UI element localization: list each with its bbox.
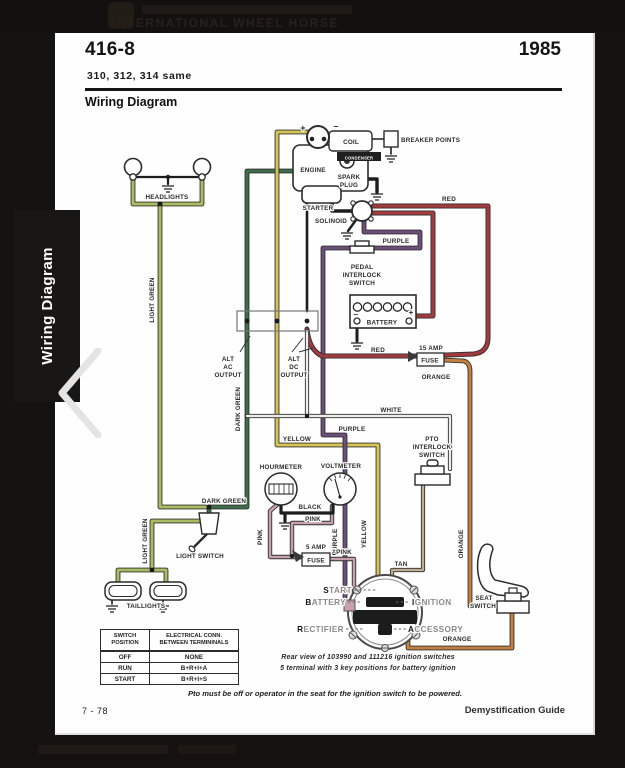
diagram-label-yellow-mid: YELLOW — [283, 436, 311, 443]
ignition-label-accessory: ACCESSORY — [408, 625, 463, 634]
ignition-label-ignition: IGNITION — [412, 598, 452, 607]
chevron-left-icon[interactable] — [56, 348, 104, 438]
light-switch-body — [199, 513, 219, 534]
solenoid-lug-2 — [369, 201, 373, 205]
diagram-label-pto-3: SWITCH — [419, 452, 445, 459]
diagram-label-tan: TAN — [394, 561, 407, 568]
table-row: RUNB+R+I+A — [101, 663, 239, 674]
diagram-label-ignition-note-2: 5 terminal with 3 key positions for batt… — [280, 665, 456, 672]
sidebar-tab-label: Wiring Diagram — [39, 247, 56, 365]
solenoid-lug-1 — [351, 201, 355, 205]
light-switch-lever — [194, 534, 207, 547]
diagram-label-voltmeter: VOLTMETER — [321, 463, 361, 470]
diagram-label-dark-green-horizontal: DARK GREEN — [202, 498, 247, 505]
ignition-label-start: START — [323, 586, 352, 595]
voltmeter-pivot — [338, 495, 341, 498]
solenoid-lug-4 — [369, 217, 373, 221]
table-row: OFFNONE — [101, 651, 239, 663]
diagram-label-yellow-vertical: YELLOW — [361, 520, 368, 548]
diagram-label-orange-bottom: ORANGE — [443, 636, 472, 643]
diagram-label-condenser: CONDENSER — [345, 156, 374, 161]
headlight-left-base — [130, 174, 136, 180]
diagram-label-spark-plug-2: PLUG — [340, 182, 358, 189]
diagram-label-fuse5-amp: 5 AMP — [306, 544, 326, 551]
diagram-label-battery: BATTERY — [367, 320, 398, 327]
battery-cell-2 — [363, 303, 371, 311]
taillight-right-lens — [154, 586, 182, 597]
diagram-label-dark-green-vertical: DARK GREEN — [235, 387, 242, 432]
diagram-label-battery-plus: + — [409, 308, 414, 317]
diagram-label-alt-dc-1: ALT — [288, 356, 300, 363]
table-row: STARTB+R+I+S — [101, 674, 239, 685]
scan-masthead: INTERNATIONAL WHEEL HORSE — [0, 0, 625, 33]
diagram-label-coil-plus: + — [300, 123, 305, 133]
diagram-label-pedal-1: PEDAL — [351, 264, 373, 271]
manual-page: 416-8 1985 310, 312, 314 same Wiring Dia… — [55, 33, 595, 735]
diagram-label-pto-2: INTERLOCK — [413, 444, 452, 451]
coil-terminal-left — [310, 137, 315, 142]
seat-switch-button — [509, 588, 517, 593]
wire-black-engine-ground — [368, 179, 377, 192]
bottom-watermark-1 — [38, 745, 168, 754]
ignition-label-battery: BATTERY — [305, 598, 346, 607]
ignition-switch-table: SWITCH POSITION ELECTRICAL CONN. BETWEEN… — [100, 629, 239, 685]
diagram-label-light-green-upper: LIGHT GREEN — [149, 277, 156, 322]
wire-lightgreen-main — [160, 204, 206, 507]
ignition-terminal-mid — [353, 610, 417, 624]
diagram-label-fuse15: FUSE — [421, 358, 439, 365]
bottom-watermark-2 — [178, 745, 236, 754]
diagram-label-black: BLACK — [298, 504, 321, 511]
diagram-label-taillights: TAILLIGHTS — [127, 603, 166, 610]
diagram-label-pink-fuse: PINK — [336, 549, 352, 556]
diagram-label-orange-vertical: ORANGE — [458, 530, 465, 559]
coil — [307, 126, 329, 148]
scan-bottom-strip — [0, 735, 625, 768]
diagram-label-solenoid: SOLINOID — [315, 218, 347, 225]
wire-darkgreen — [209, 171, 295, 514]
seat-switch-plunger — [505, 593, 521, 601]
viewer-stage: INTERNATIONAL WHEEL HORSE 416-8 1985 310… — [0, 0, 625, 768]
wire-lightgreen-taillights — [118, 521, 200, 583]
page-number: 7 - 78 — [82, 706, 108, 716]
solenoid-lug-3 — [351, 217, 355, 221]
ignition-terminal-bottom — [378, 624, 392, 635]
diagram-label-pink-vertical: PINK — [257, 529, 264, 545]
battery-pos-terminal — [406, 318, 412, 324]
diagram-label-coil-minus: – — [333, 121, 338, 131]
diagram-label-alt-ac-2: AC — [223, 364, 233, 371]
diagram-label-alt-ac-3: OUTPUT — [214, 372, 241, 379]
diagram-label-red-mid: RED — [371, 347, 385, 354]
seat-switch-base — [497, 601, 529, 613]
diagram-label-red-top: RED — [442, 196, 456, 203]
diagram-label-pedal-3: SWITCH — [349, 280, 375, 287]
diagram-label-alt-dc-3: OUTPUT — [280, 372, 307, 379]
pto-switch-mid — [421, 466, 444, 474]
diagram-label-alt-dc-2: DC — [289, 364, 299, 371]
diagram-label-ignition-note-1: Rear view of 103990 and 111216 ignition … — [281, 654, 455, 661]
diagram-label-battery-minus: – — [354, 310, 359, 319]
diagram-label-seat-switch-2: SWITCH — [470, 603, 496, 610]
diagram-label-alt-ac-1: ALT — [222, 356, 234, 363]
battery-cell-5 — [393, 303, 401, 311]
ignition-label-rectifier: RECTIFIER — [297, 625, 344, 634]
pedal-interlock-switch-cap — [355, 241, 369, 246]
diagram-label-starter: STARTER — [303, 205, 334, 212]
diagram-label-pto-1: PTO — [425, 436, 438, 443]
seat — [478, 544, 529, 597]
diagram-label-pedal-2: INTERLOCK — [343, 272, 382, 279]
diagram-label-headlights: HEADLIGHTS — [146, 194, 189, 201]
diagram-label-pink-horizontal: PINK — [305, 516, 321, 523]
wire-black-solenoid-ground — [348, 220, 356, 231]
pedal-interlock-switch-base — [350, 246, 374, 253]
battery-cell-3 — [373, 303, 381, 311]
diagram-label-seat-switch-1: SEAT — [475, 595, 492, 602]
guide-name: Demystification Guide — [465, 705, 565, 716]
diagram-label-coil: COIL — [343, 139, 359, 146]
diagram-label-breaker-points: BREAKER POINTS — [401, 137, 460, 144]
pto-switch-base — [415, 474, 450, 485]
diagram-label-hourmeter: HOURMETER — [260, 464, 303, 471]
masthead-text-line1 — [142, 5, 352, 14]
diagram-label-fuse5: FUSE — [307, 558, 325, 565]
battery-cell-4 — [383, 303, 391, 311]
diagram-label-orange-top: ORANGE — [422, 374, 451, 381]
table-header-position: SWITCH POSITION — [101, 630, 150, 652]
headlight-right — [194, 159, 211, 176]
diagram-label-spark-plug-1: SPARK — [338, 174, 361, 181]
starter-box — [302, 186, 341, 203]
diagram-label-purple-top: PURPLE — [383, 238, 410, 245]
table-header-connections: ELECTRICAL CONN. BETWEEN TERMININALS — [150, 630, 239, 652]
diagram-label-light-switch: LIGHT SWITCH — [176, 553, 224, 560]
coil-terminal-right — [322, 137, 327, 142]
masthead-text-line2: INTERNATIONAL WHEEL HORSE — [112, 16, 339, 30]
diagram-label-engine: ENGINE — [300, 167, 325, 174]
diagram-label-purple-mid: PURPLE — [339, 426, 366, 433]
headlight-left — [125, 159, 142, 176]
taillight-left-lens — [109, 586, 137, 597]
breaker-points-box — [384, 131, 398, 147]
diagram-label-light-green-lower: LIGHT GREEN — [142, 518, 149, 563]
diagram-label-white: WHITE — [380, 407, 401, 414]
pto-note: Pto must be off or operator in the seat … — [55, 689, 595, 698]
diagram-label-fuse15-amp: 15 AMP — [419, 345, 443, 352]
headlight-right-base — [199, 174, 205, 180]
pto-switch-plunger — [427, 460, 438, 466]
